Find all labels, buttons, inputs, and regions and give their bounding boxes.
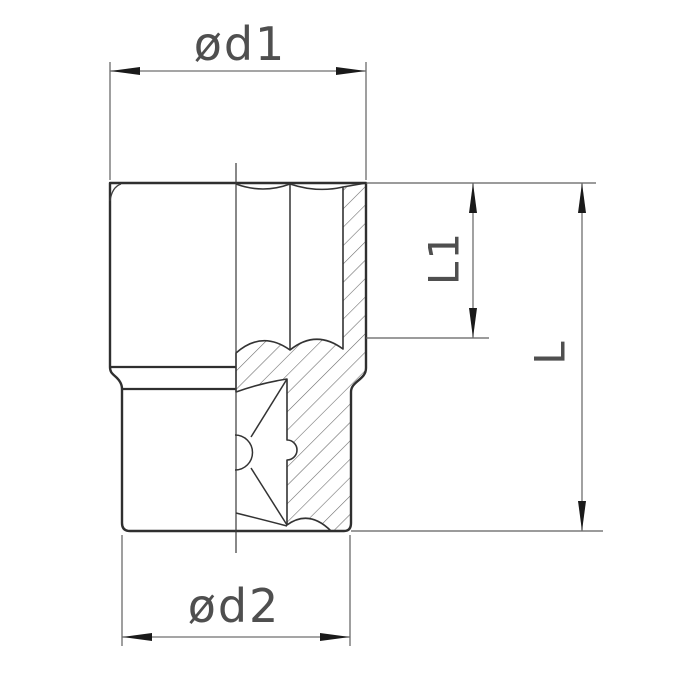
dim-od2-label: ød2 [188,579,281,633]
technical-drawing-canvas: ød1 ød2 L1 L [0,0,700,700]
dim-od1-label: ød1 [194,17,287,71]
dim-od2-arrow-left [122,633,152,641]
drive-entry-chamfer-edge [236,513,287,526]
dim-od1: ød1 [110,17,366,180]
dim-od1-arrow-left [110,67,140,75]
dim-od1-arrow-right [336,67,366,75]
top-left-chamfer-edge [110,184,121,201]
dim-l-arrow-top [578,183,586,213]
drive-apex-upper-edge [251,379,287,437]
dim-l-arrow-bottom [578,501,586,531]
dim-l1-label: L1 [420,231,469,285]
socket-technical-drawing: ød1 ød2 L1 L [0,0,700,700]
dim-l1-arrow-top [469,183,477,213]
drive-apex-lower-edge [251,468,287,525]
dim-l1: L1 [366,183,489,338]
dim-l: L [351,183,603,531]
dim-l-label: L [526,339,575,364]
section-hatch-area [236,183,366,531]
dim-l1-arrow-bottom [469,308,477,338]
ball-groove-arc [235,435,253,470]
dim-od2-arrow-right [320,633,350,641]
